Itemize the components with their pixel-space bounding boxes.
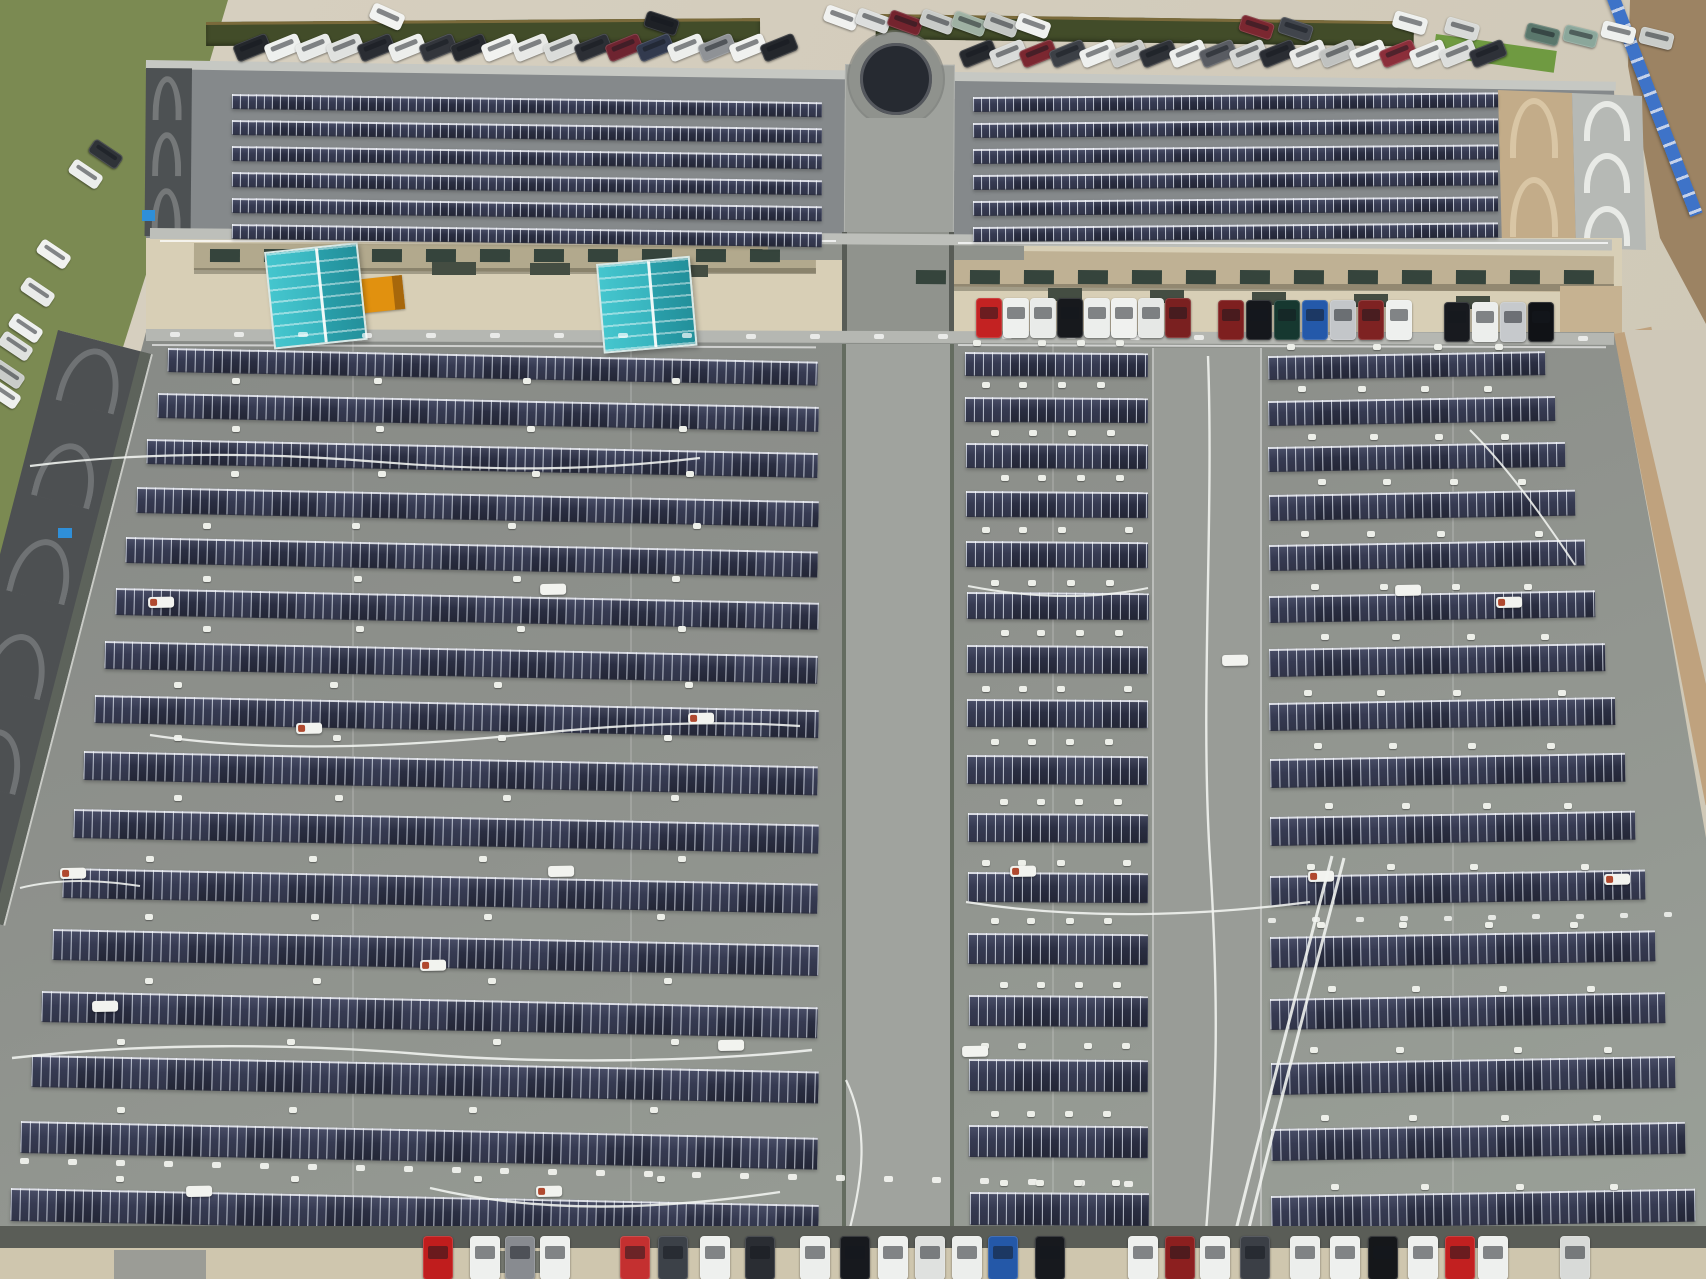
roof-vent (1097, 382, 1105, 388)
parking-row-bottom-car (988, 1236, 1018, 1279)
car-windshield (980, 307, 998, 319)
arch-motif (55, 342, 128, 415)
car-windshield (1483, 1246, 1503, 1259)
roof-vent (1106, 580, 1114, 586)
car-windshield (894, 14, 917, 27)
roof-dot-seam-low (932, 1177, 941, 1183)
parking-courtyard-car (1472, 302, 1498, 342)
arch-motif (6, 532, 79, 605)
roof-vent (1535, 531, 1543, 537)
roof-vent (1077, 475, 1085, 481)
car-windshield (1334, 309, 1352, 321)
parking-row-bottom-car (505, 1236, 535, 1279)
solar-array-main-middle-row (965, 443, 1148, 469)
roof-vent (1383, 479, 1391, 485)
windows-left-wing-slit (534, 249, 564, 262)
roof-vent (469, 1107, 477, 1113)
roof-vent (1317, 922, 1325, 928)
car-windshield (642, 38, 667, 52)
roof-vent (657, 914, 665, 920)
car-windshield (611, 38, 636, 52)
roof-vent (1470, 864, 1478, 870)
car-windshield (487, 38, 512, 52)
car-windshield (1205, 44, 1230, 58)
arch-motif (1510, 177, 1558, 237)
roof-vent (479, 856, 487, 862)
car-windshield (1145, 44, 1170, 58)
parking-row-bottom-car (423, 1236, 453, 1279)
rooftop-cart (540, 584, 566, 595)
roof-vent (1112, 1180, 1120, 1186)
roof-vent (1308, 434, 1316, 440)
parapet-ticks (938, 334, 948, 339)
solar-array-main-middle-row (966, 491, 1148, 518)
roof-vent (1036, 1180, 1044, 1186)
blue-bin-upper (142, 210, 155, 221)
parking-row-bottom-car (1368, 1236, 1398, 1279)
roof-dot-seam-low (20, 1158, 29, 1164)
car-windshield (1169, 307, 1187, 319)
roof-dot-seam-low (692, 1172, 701, 1178)
car-windshield (545, 1246, 565, 1259)
roof-vent (982, 382, 990, 388)
roof-vent (1058, 382, 1066, 388)
roof-vent (1485, 922, 1493, 928)
roof-vent (686, 471, 694, 477)
roof-vent (1380, 584, 1388, 590)
roof-vent (1524, 584, 1532, 590)
solar-array-main-middle-row (968, 933, 1148, 965)
solar-array-main-middle-row (965, 397, 1148, 423)
roof-vent (1103, 1111, 1111, 1117)
car-windshield (1040, 1246, 1060, 1259)
roof-vent (1307, 864, 1315, 870)
roof-vent (1028, 739, 1036, 745)
roof-vent (1392, 634, 1400, 640)
roof-vent (1434, 344, 1442, 350)
car-windshield (1007, 307, 1025, 319)
roof-vent (1116, 340, 1124, 346)
car-windshield (510, 1246, 530, 1259)
roof-vent (1321, 634, 1329, 640)
parking-row-bottom-car (1240, 1236, 1270, 1279)
parking-row-bottom-car (1290, 1236, 1320, 1279)
roof-vent (678, 626, 686, 632)
car-windshield (1475, 44, 1500, 58)
parking-courtyard-car (1330, 300, 1356, 340)
roof-vent (1541, 634, 1549, 640)
windows-left-wing-slit (372, 249, 402, 262)
parking-row-bottom-car (470, 1236, 500, 1279)
car-windshield (704, 38, 729, 52)
roof-vent (1027, 918, 1035, 924)
roof-vent (1000, 982, 1008, 988)
windows-right-wing-slit (1402, 270, 1432, 284)
roof-vent (1483, 803, 1491, 809)
courtyard-equipment-1 (530, 263, 570, 275)
parking-row-bottom-car (658, 1236, 688, 1279)
roof-vent (1409, 1115, 1417, 1121)
roof-vent (1304, 690, 1312, 696)
roof-vent (991, 1111, 999, 1117)
solar-array-main-middle-row (968, 872, 1148, 903)
cart-stripe (1012, 868, 1019, 875)
parking-courtyard-car (1030, 298, 1056, 338)
roof-vent (356, 626, 364, 632)
car-windshield (1142, 307, 1160, 319)
car-windshield (883, 1246, 903, 1259)
parking-row-bottom-car (1408, 1236, 1438, 1279)
roof-vent (146, 856, 154, 862)
roof-vent (523, 378, 531, 384)
roof-dot-seam-low (356, 1165, 365, 1171)
parking-courtyard-car (1084, 298, 1110, 338)
car-windshield (1565, 1246, 1585, 1259)
parking-courtyard-car (1386, 300, 1412, 340)
rooftop-cart (718, 1040, 744, 1051)
car-windshield (1531, 27, 1555, 38)
car-windshield (1022, 17, 1045, 30)
cart-stripe (538, 1188, 545, 1195)
rooftop-cart (548, 866, 574, 877)
roof-vent (1516, 1184, 1524, 1190)
roof-vent (1123, 860, 1131, 866)
roof-vent (1373, 344, 1381, 350)
roof-vent (1037, 799, 1045, 805)
parapet-ticks (1578, 336, 1588, 341)
roof-vent (488, 978, 496, 984)
roof-vent (493, 1039, 501, 1045)
roof-vent (1421, 386, 1429, 392)
roof-vent (145, 978, 153, 984)
parking-courtyard-car (1274, 300, 1300, 340)
arch-motif (152, 132, 181, 176)
car-windshield (1504, 311, 1522, 323)
parking-courtyard-car (976, 298, 1002, 338)
solar-array-main-middle-row (967, 699, 1148, 728)
car-windshield (1607, 25, 1631, 36)
roof-vent (376, 426, 384, 432)
roof-vent (1116, 475, 1124, 481)
roof-vent (1314, 743, 1322, 749)
roof-vent (1084, 1043, 1092, 1049)
car-windshield (650, 15, 674, 27)
parking-row-bottom-car (1128, 1236, 1158, 1279)
car-windshield (958, 15, 981, 28)
rooftop-cart (60, 868, 86, 879)
roof-vent (1076, 630, 1084, 636)
roof-vent (1075, 799, 1083, 805)
windows-right-wing-slit (1564, 270, 1594, 284)
roof-vent (1038, 475, 1046, 481)
car-windshield (270, 38, 295, 52)
roof-vent (378, 471, 386, 477)
car-windshield (1205, 1246, 1225, 1259)
rooftop-cart (688, 713, 714, 724)
parking-courtyard-car (1218, 300, 1244, 340)
roof-vent (508, 523, 516, 529)
roof-vent (1370, 434, 1378, 440)
roof-dot-seam-low (164, 1161, 173, 1167)
rooftop-cart (92, 1001, 118, 1012)
arch-motif (153, 76, 182, 120)
roof-dot-seam-low (500, 1168, 509, 1174)
parking-row-bottom-car (800, 1236, 830, 1279)
parapet-ticks (682, 333, 692, 338)
roof-vent (1587, 986, 1595, 992)
roof-vent (1501, 1115, 1509, 1121)
car-windshield (1399, 15, 1423, 26)
roof-vent (672, 378, 680, 384)
roof-vent (231, 471, 239, 477)
parapet-ticks (362, 333, 372, 338)
car-windshield (428, 1246, 448, 1259)
car-windshield (1115, 307, 1133, 319)
service-corridor (1152, 348, 1262, 1232)
roof-vent (1402, 803, 1410, 809)
windows-left-wing-slit (588, 249, 618, 262)
roof-vent (1367, 531, 1375, 537)
roof-vent (498, 735, 506, 741)
roof-dot-seam-right (1664, 912, 1672, 917)
roof-vent (1018, 1043, 1026, 1049)
roof-vent (335, 795, 343, 801)
roof-vent (1287, 344, 1295, 350)
roof-vent (1325, 803, 1333, 809)
cart-stripe (690, 715, 697, 722)
roof-vent (1058, 527, 1066, 533)
parapet-ticks (170, 332, 180, 337)
car-windshield (1335, 1246, 1355, 1259)
parking-row-bottom-car (745, 1236, 775, 1279)
car-windshield (1373, 1246, 1393, 1259)
roof-vent (1001, 630, 1009, 636)
roof-vent (1437, 531, 1445, 537)
rooftop-cart (148, 597, 174, 608)
roof-vent (1421, 1184, 1429, 1190)
rooftop-cart (1010, 866, 1036, 877)
bottom-dock (114, 1250, 206, 1279)
car-windshield (1115, 44, 1140, 58)
roof-dot-seam-right (1576, 914, 1584, 919)
roof-vent (1311, 584, 1319, 590)
roof-vent (1518, 479, 1526, 485)
car-windshield (394, 38, 419, 52)
parking-row-bottom-car (620, 1236, 650, 1279)
windows-right-wing-slit (1078, 270, 1108, 284)
roof-vent (1075, 982, 1083, 988)
car-windshield (425, 38, 450, 52)
car-windshield (580, 38, 605, 52)
car-windshield (1532, 311, 1550, 323)
roof-vent (1514, 1047, 1522, 1053)
roof-vent (1065, 1111, 1073, 1117)
car-windshield (1055, 44, 1080, 58)
car-windshield (456, 38, 481, 52)
car-windshield (830, 9, 853, 22)
arch-motif (31, 436, 104, 509)
upper-rail-right (958, 242, 1608, 244)
rooftop-cart (1222, 655, 1248, 666)
roof-vent (1077, 340, 1085, 346)
car-windshield (1385, 44, 1410, 58)
car-windshield (1295, 1246, 1315, 1259)
roof-vent (1412, 986, 1420, 992)
roof-vent (203, 523, 211, 529)
car-windshield (1133, 1246, 1153, 1259)
roof-vent (1001, 475, 1009, 481)
car-windshield (1222, 309, 1240, 321)
car-windshield (995, 44, 1020, 58)
roof-vent (1387, 864, 1395, 870)
car-windshield (1355, 44, 1380, 58)
roof-vent (1495, 344, 1503, 350)
roof-vent (330, 682, 338, 688)
roof-vent (333, 735, 341, 741)
blue-bin-roof (58, 528, 72, 538)
car-windshield (735, 38, 760, 52)
roof-vent (1019, 686, 1027, 692)
roof-vent (1389, 743, 1397, 749)
solar-array-main-middle-row (966, 541, 1148, 569)
parking-courtyard-car (1444, 302, 1470, 342)
car-windshield (1569, 29, 1593, 40)
parapet-ticks (234, 332, 244, 337)
roof-vent (1000, 799, 1008, 805)
car-windshield (1025, 44, 1050, 58)
parking-courtyard-car (1358, 300, 1384, 340)
roof-vent (1377, 690, 1385, 696)
windows-right-wing-slit (1510, 270, 1540, 284)
car-windshield (1245, 19, 1269, 31)
windows-right-wing-slit (970, 270, 1000, 284)
roof-vent (287, 1039, 295, 1045)
parking-courtyard-car (1500, 302, 1526, 342)
solar-array-main-east-row (1269, 539, 1586, 571)
parapet-ticks (426, 333, 436, 338)
main-corridor (842, 344, 954, 1250)
car-windshield (239, 38, 264, 52)
roof-vent (982, 860, 990, 866)
car-windshield (705, 1246, 725, 1259)
roof-vent (672, 576, 680, 582)
roof-vent (679, 426, 687, 432)
car-windshield (301, 38, 326, 52)
parking-row-bottom-car (878, 1236, 908, 1279)
roof-vent (174, 682, 182, 688)
roof-vent (1037, 982, 1045, 988)
car-windshield (990, 16, 1013, 29)
rooftop-cart (186, 1186, 212, 1197)
car-windshield (965, 44, 990, 58)
roof-vent (1000, 1180, 1008, 1186)
windows-left-wing-slit (210, 249, 240, 262)
car-windshield (1284, 21, 1308, 33)
windows-right-wing-slit (916, 270, 946, 284)
roof-vent (657, 1176, 665, 1182)
roof-vent (991, 918, 999, 924)
car-windshield (625, 1246, 645, 1259)
roof-vent (982, 686, 990, 692)
rooftop-cart (1604, 874, 1630, 885)
arch-motif (1584, 101, 1630, 141)
roof-dot-seam-low (548, 1169, 557, 1175)
solar-array-main-east-row (1270, 810, 1636, 846)
windows-left-wing-slit (696, 249, 726, 262)
car-windshield (1170, 1246, 1190, 1259)
roof-vent (991, 430, 999, 436)
roof-vent (117, 1039, 125, 1045)
roof-vent (1298, 386, 1306, 392)
roof-vent (678, 856, 686, 862)
roof-dot-seam-right (1488, 915, 1496, 920)
roof-vent (1027, 1111, 1035, 1117)
rooftop-cart (536, 1186, 562, 1197)
courtyard-equipment-0 (432, 262, 476, 275)
roof-vent (1318, 479, 1326, 485)
cart-stripe (62, 870, 69, 877)
roof-vent (1125, 527, 1133, 533)
roof-vent (1037, 630, 1045, 636)
cart-stripe (422, 962, 429, 969)
roof-vent (1057, 860, 1065, 866)
shed-roof-part (266, 244, 365, 347)
rooftop-cart (420, 960, 446, 971)
solar-array-main-east-row (1271, 1122, 1686, 1162)
roof-vent (517, 626, 525, 632)
windows-right-wing-slit (1132, 270, 1162, 284)
roof-vent (474, 1176, 482, 1182)
teal-shed-2 (596, 256, 697, 354)
roof-vent (1501, 434, 1509, 440)
solar-array-main-east-row (1270, 930, 1655, 967)
roof-vent (693, 523, 701, 529)
car-windshield (1450, 1246, 1470, 1259)
roof-vent (1301, 531, 1309, 537)
roof-vent (671, 1039, 679, 1045)
parking-row-bottom-car (1478, 1236, 1508, 1279)
roof-vent (1453, 690, 1461, 696)
roof-vent (1358, 386, 1366, 392)
car-windshield (1295, 44, 1320, 58)
car-windshield (862, 12, 885, 25)
cart-stripe (150, 599, 157, 606)
parking-row-bottom-car (1445, 1236, 1475, 1279)
roof-vent (1038, 340, 1046, 346)
roof-dot-seam-right (1400, 916, 1408, 921)
roof-vent (116, 1176, 124, 1182)
parapet-ticks (490, 333, 500, 338)
parapet-ticks (554, 333, 564, 338)
roof-vent (232, 426, 240, 432)
roof-dot-seam-low (68, 1159, 77, 1165)
roof-vent (1029, 430, 1037, 436)
solar-array-main-middle-row (969, 1059, 1148, 1092)
roof-vent (1570, 922, 1578, 928)
roof-vent (650, 1107, 658, 1113)
roof-dot-seam-right (1356, 917, 1364, 922)
parking-courtyard-car (1246, 300, 1272, 340)
roof-vent (1593, 1115, 1601, 1121)
roof-vent (1019, 527, 1027, 533)
parking-row-bottom-car (700, 1236, 730, 1279)
car-windshield (1085, 44, 1110, 58)
parking-courtyard-car (1528, 302, 1554, 342)
arch-motif (0, 627, 55, 700)
windows-left-wing-slit (750, 249, 780, 262)
arch-motif (0, 818, 5, 891)
shed-roof-part (598, 258, 695, 352)
